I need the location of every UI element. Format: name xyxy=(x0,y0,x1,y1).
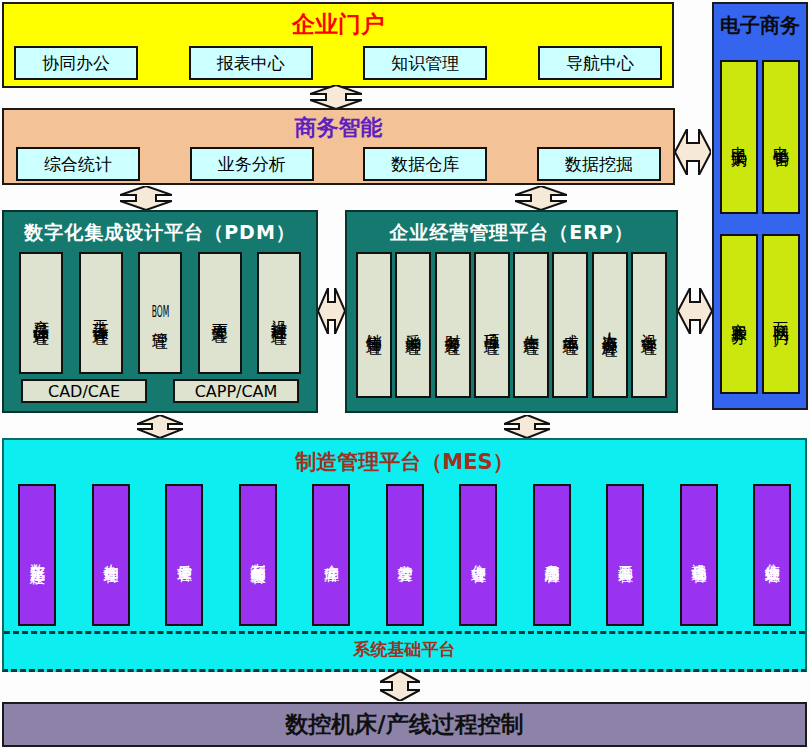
ecommerce-title: 电子商务 xyxy=(714,12,806,39)
portal-item: 协同办公 xyxy=(14,46,138,80)
bi-item: 综合统计 xyxy=(16,147,140,181)
mes-module: 作业绩效管理 xyxy=(753,484,791,626)
erp-platform: 企业经营管理平台（ERP） 销售管理采购管理财务管理项目管理生产管理成本管理人力… xyxy=(345,210,678,413)
erp-module: 财务管理 xyxy=(435,252,471,398)
pdm-tools: CAD/CAECAPP/CAM xyxy=(21,379,299,403)
bi-item: 业务分析 xyxy=(190,147,314,181)
erp-module: 成本管理 xyxy=(552,252,588,398)
erp-columns: 销售管理采购管理财务管理项目管理生产管理成本管理人力资源管理设备管理 xyxy=(347,252,676,398)
ecommerce-module: 互联网门户 xyxy=(762,234,800,394)
ecommerce-top-items: 电子采购电子销售 xyxy=(720,60,800,214)
ecommerce-module: 电子采购 xyxy=(720,60,758,214)
erp-title: 企业经营管理平台（ERP） xyxy=(347,220,676,246)
pdm-module: BOM管理 xyxy=(138,252,182,374)
mes-module: 设备现场管理 xyxy=(680,484,718,626)
mes-module: 在制品与实绩管理 xyxy=(239,484,277,626)
erp-module: 设备管理 xyxy=(631,252,667,398)
mes-module: 生产计划管理 xyxy=(92,484,130,626)
ecommerce-module: 电子销售 xyxy=(762,60,800,214)
erp-module: 生产管理 xyxy=(513,252,549,398)
mes-module: 工器具管理 xyxy=(606,484,644,626)
pdm-module: 产品设计管理 xyxy=(19,252,63,374)
mes-columns: 数字化工厂建模生产计划管理质量管理在制品与实绩管理仓库管理发货管理作业者管理产品… xyxy=(4,484,805,626)
architecture-diagram: 企业门户 协同办公报表中心知识管理导航中心 商务智能 综合统计业务分析数据仓库数… xyxy=(0,0,810,749)
business-intelligence-band: 商务智能 综合统计业务分析数据仓库数据挖掘 xyxy=(2,108,675,185)
enterprise-portal-items: 协同办公报表中心知识管理导航中心 xyxy=(4,46,672,80)
pdm-columns: 产品设计管理工艺设计管理BOM管理变更管理设计过程管理 xyxy=(4,252,316,374)
portal-item: 知识管理 xyxy=(363,46,487,80)
process-control-label: 数控机床/产线过程控制 xyxy=(285,709,523,740)
erp-module: 人力资源管理 xyxy=(592,252,628,398)
double-arrow-vertical-icon xyxy=(504,415,550,438)
base-platform-divider xyxy=(4,631,805,634)
double-arrow-vertical-icon xyxy=(380,671,420,701)
ecommerce-module: 客户服务 xyxy=(720,234,758,394)
double-arrow-horizontal-icon xyxy=(678,288,712,334)
ecommerce-bottom-items: 客户服务互联网门户 xyxy=(720,234,800,394)
portal-item: 报表中心 xyxy=(189,46,313,80)
mes-title: 制造管理平台（MES） xyxy=(4,448,805,476)
erp-module: 项目管理 xyxy=(474,252,510,398)
pdm-title: 数字化集成设计平台（PDM） xyxy=(4,220,316,246)
double-arrow-horizontal-icon xyxy=(675,129,711,175)
pdm-module: 变更管理 xyxy=(198,252,242,374)
bi-item: 数据挖掘 xyxy=(537,147,661,181)
pdm-module: 设计过程管理 xyxy=(257,252,301,374)
mes-module: 作业者管理 xyxy=(459,484,497,626)
mes-module: 质量管理 xyxy=(165,484,203,626)
double-arrow-vertical-icon xyxy=(137,415,183,438)
enterprise-portal-band: 企业门户 协同办公报表中心知识管理导航中心 xyxy=(2,2,674,88)
business-intelligence-title: 商务智能 xyxy=(4,113,673,143)
base-platform-label: 系统基础平台 xyxy=(4,638,805,661)
mes-module: 仓库管理 xyxy=(312,484,350,626)
double-arrow-vertical-icon xyxy=(310,85,362,109)
process-control-band: 数控机床/产线过程控制 xyxy=(2,702,807,747)
pdm-tool: CAD/CAE xyxy=(21,379,147,403)
pdm-tool: CAPP/CAM xyxy=(173,379,299,403)
mes-platform: 制造管理平台（MES） 数字化工厂建模生产计划管理质量管理在制品与实绩管理仓库管… xyxy=(2,438,807,672)
double-arrow-vertical-icon xyxy=(515,186,567,210)
mes-module: 产品履历管理 xyxy=(533,484,571,626)
erp-module: 采购管理 xyxy=(395,252,431,398)
business-intelligence-items: 综合统计业务分析数据仓库数据挖掘 xyxy=(4,147,673,181)
erp-module: 销售管理 xyxy=(356,252,392,398)
bi-item: 数据仓库 xyxy=(363,147,487,181)
double-arrow-vertical-icon xyxy=(120,186,172,210)
pdm-module: 工艺设计管理 xyxy=(79,252,123,374)
portal-item: 导航中心 xyxy=(538,46,662,80)
ecommerce-panel: 电子商务 电子采购电子销售 客户服务互联网门户 xyxy=(712,2,808,410)
mes-module: 数字化工厂建模 xyxy=(18,484,56,626)
mes-module: 发货管理 xyxy=(386,484,424,626)
double-arrow-horizontal-icon xyxy=(318,288,345,334)
enterprise-portal-title: 企业门户 xyxy=(4,9,672,40)
pdm-platform: 数字化集成设计平台（PDM） 产品设计管理工艺设计管理BOM管理变更管理设计过程… xyxy=(2,210,318,413)
